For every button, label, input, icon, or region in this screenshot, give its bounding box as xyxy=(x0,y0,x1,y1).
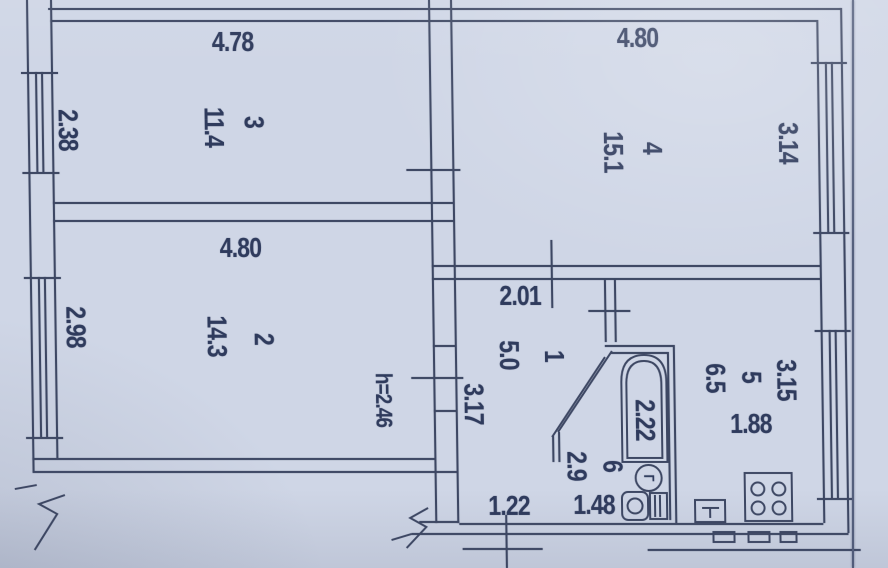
wall-break-icon xyxy=(406,508,429,548)
toilet-cistern-icon xyxy=(650,493,667,519)
water-heater-letter: Г xyxy=(640,475,657,482)
bath-number-label: 6 xyxy=(596,460,628,472)
dim-bath-width: 1.48 xyxy=(573,489,615,521)
ceiling-height-note: h=2.46 xyxy=(370,373,398,427)
room3-number-label: 3 xyxy=(238,116,270,128)
dim-hall-entry-width: 1.22 xyxy=(488,490,530,522)
sink-icon xyxy=(702,508,719,518)
kitchen-number-label: 5 xyxy=(735,371,767,383)
stove-icon xyxy=(745,473,793,521)
room2-area-label: 14.3 xyxy=(200,315,233,356)
wall-break-icon xyxy=(391,534,411,540)
wall-break-icon xyxy=(34,495,66,550)
paper-edge xyxy=(852,0,854,568)
room3-area-label: 11.4 xyxy=(197,107,230,147)
dim-room2-depth: 2.98 xyxy=(59,306,92,347)
wall-break-icon xyxy=(15,485,37,489)
dim-room3-depth: 2.38 xyxy=(52,109,85,150)
toilet-cistern-icon xyxy=(655,495,660,517)
stove-burner-icon xyxy=(752,502,765,515)
dim-room3-width: 4.78 xyxy=(212,26,254,58)
toilet-icon xyxy=(627,499,642,514)
hall-area-label: 5.0 xyxy=(493,340,525,369)
dim-room4-width: 4.80 xyxy=(617,22,659,54)
room2-number-label: 2 xyxy=(248,333,280,345)
stove-burner-icon xyxy=(751,483,764,496)
floorplan-photo: 4.78 2.38 11.4 3 4.80 3.14 15.1 4 4.80 2… xyxy=(0,0,888,568)
dim-kitchen-width: 1.88 xyxy=(730,408,772,440)
stove-burner-icon xyxy=(772,483,785,496)
dim-kitchen-depth: 3.15 xyxy=(770,359,803,400)
room4-area-label: 15.1 xyxy=(597,131,630,172)
dim-hall-width: 2.01 xyxy=(499,280,541,312)
toilet-icon xyxy=(622,492,648,520)
fixtures-overlay xyxy=(0,0,888,568)
bath-diagonal-wall-inner xyxy=(557,351,613,432)
hall-number-label: 1 xyxy=(538,350,570,362)
dim-room4-depth: 3.14 xyxy=(772,122,805,163)
stove-burner-icon xyxy=(773,502,786,515)
dim-bath-length: 2.22 xyxy=(629,399,662,440)
bath-diagonal-wall-outer xyxy=(551,357,606,437)
dim-room2-width: 4.80 xyxy=(220,232,262,264)
kitchen-area-label: 6.5 xyxy=(699,363,731,392)
room4-number-label: 4 xyxy=(636,142,668,154)
dim-hall-length: 3.17 xyxy=(457,383,490,424)
bath-area-label: 2.9 xyxy=(560,451,592,480)
floorplan-drawing: 4.78 2.38 11.4 3 4.80 3.14 15.1 4 4.80 2… xyxy=(0,0,888,568)
